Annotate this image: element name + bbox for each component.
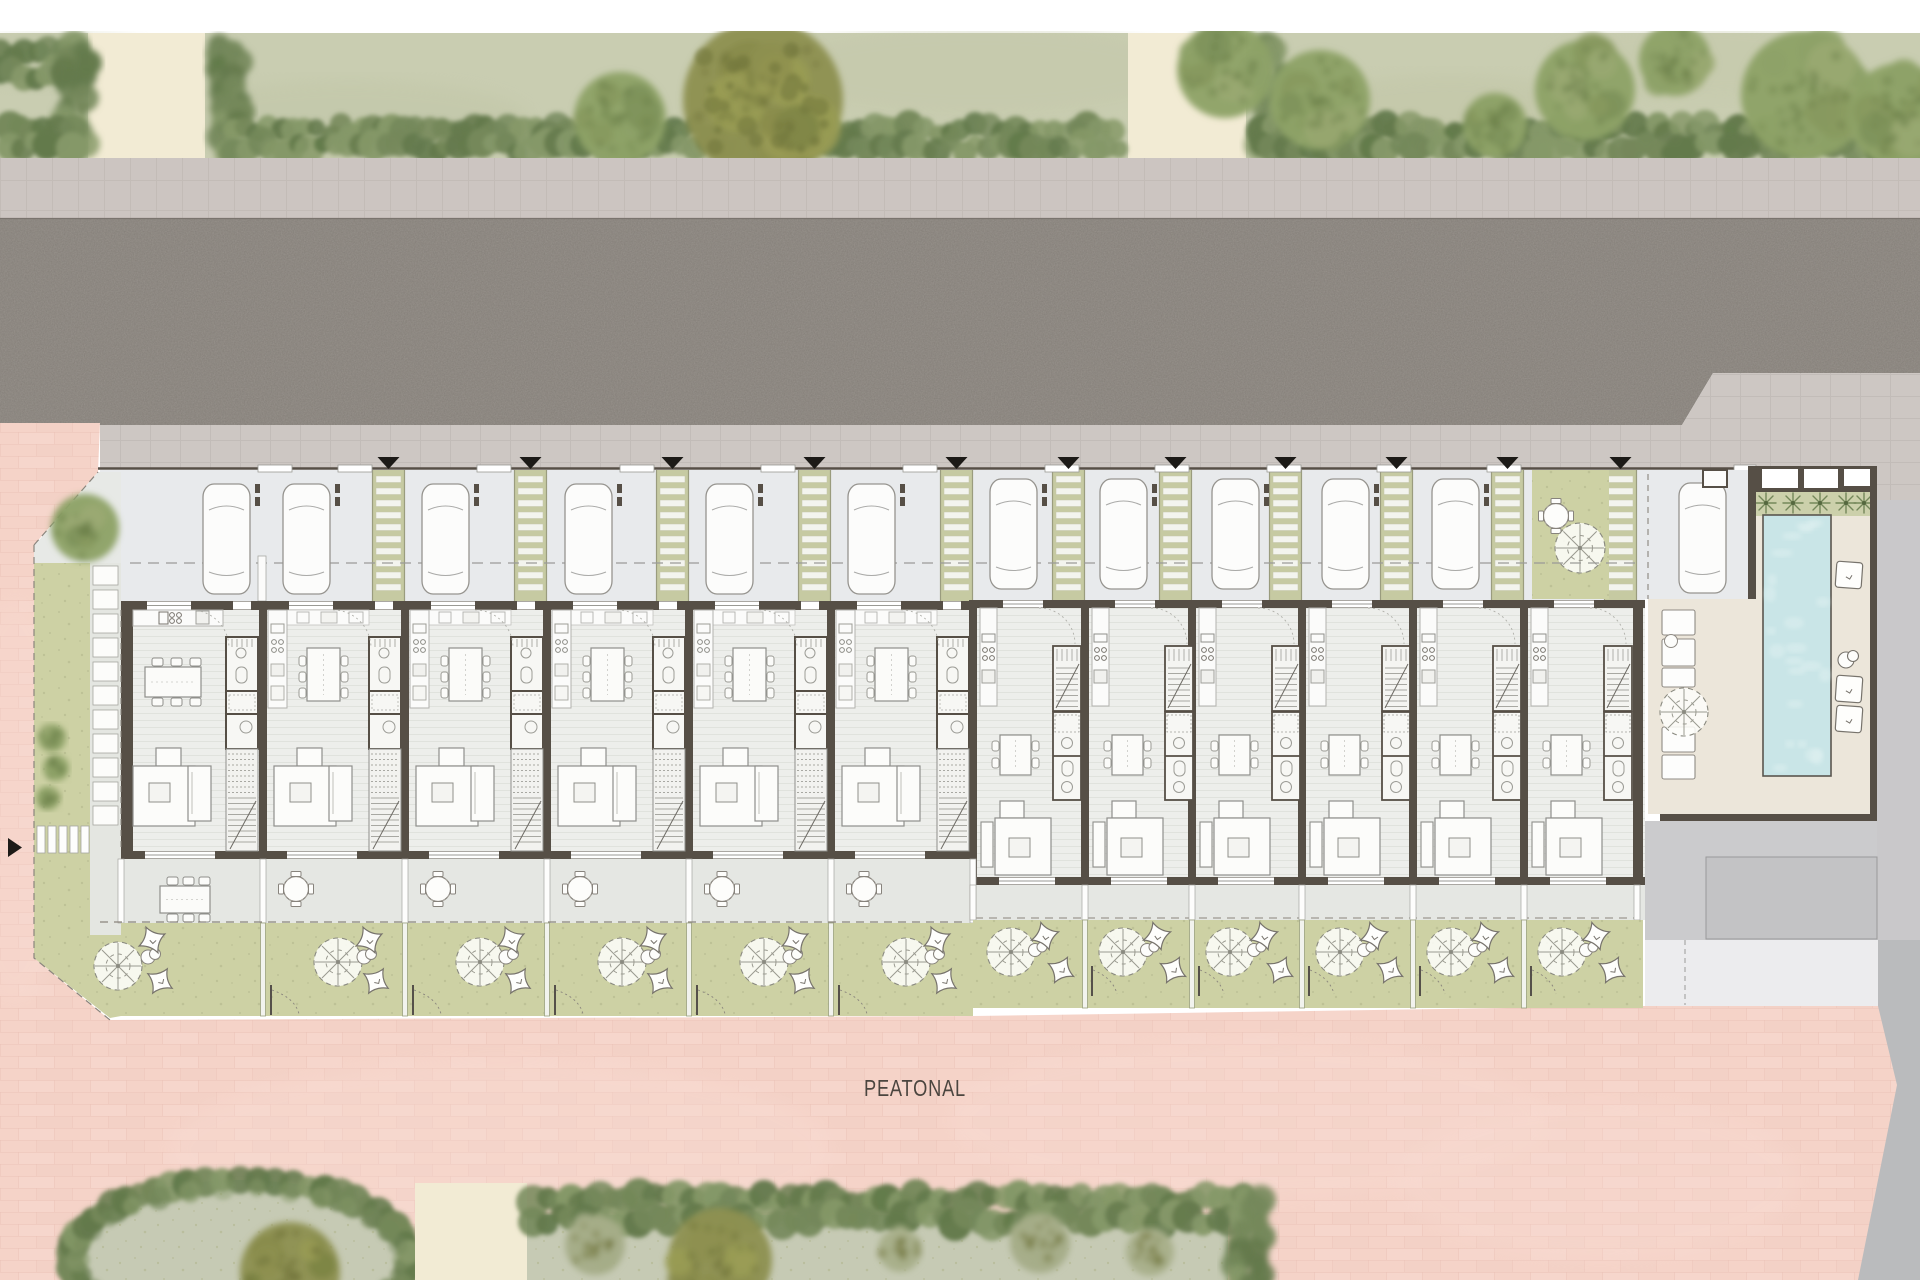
svg-text:PEATONAL: PEATONAL bbox=[864, 1075, 966, 1101]
